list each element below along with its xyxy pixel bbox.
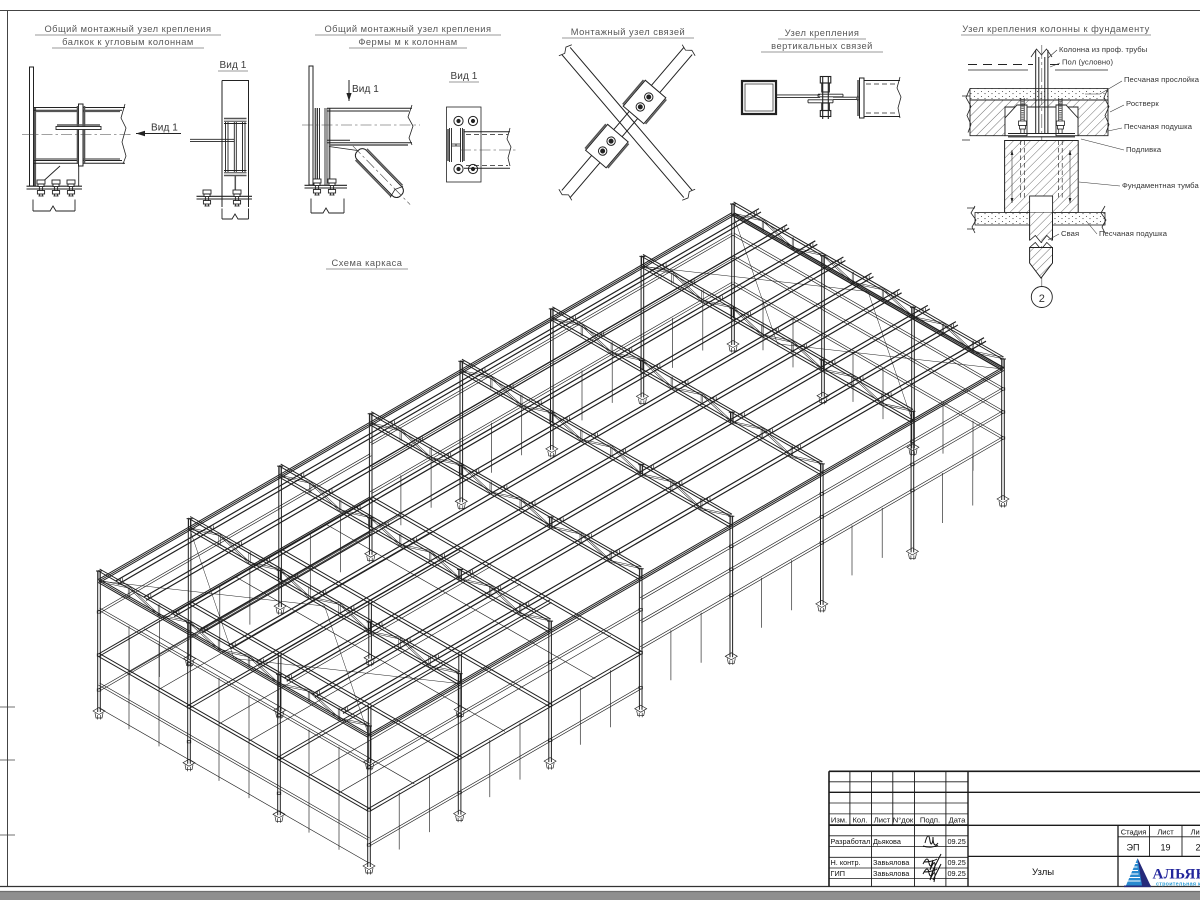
svg-text:Узел крепления колонны к фунда: Узел крепления колонны к фундаменту <box>962 24 1150 34</box>
svg-text:Вид 1: Вид 1 <box>352 84 379 95</box>
svg-text:Лист: Лист <box>874 815 891 824</box>
svg-text:Колонна из проф. трубы: Колонна из проф. трубы <box>1059 45 1147 54</box>
svg-text:Монтажный узел связей: Монтажный узел связей <box>571 27 686 37</box>
svg-text:2: 2 <box>1039 293 1045 305</box>
svg-text:Дьякова: Дьякова <box>873 837 902 846</box>
svg-text:Н. контр.: Н. контр. <box>831 858 861 867</box>
svg-text:ЭП: ЭП <box>1127 843 1140 853</box>
svg-text:Свая: Свая <box>1061 229 1079 238</box>
svg-text:Вид 1: Вид 1 <box>151 123 178 134</box>
svg-text:балкок к угловым колоннам: балкок к угловым колоннам <box>62 37 194 47</box>
svg-text:Фермы м к колоннам: Фермы м к колоннам <box>358 37 457 47</box>
svg-text:Узел крепления: Узел крепления <box>785 28 860 38</box>
svg-text:Общий монтажный узел крепления: Общий монтажный узел крепления <box>44 24 211 34</box>
svg-text:Песчаная подушка: Песчаная подушка <box>1124 122 1193 131</box>
svg-text:Общий монтажный узел крепления: Общий монтажный узел крепления <box>324 24 491 34</box>
svg-text:09.25: 09.25 <box>948 858 966 867</box>
svg-text:Песчаная прослойка: Песчаная прослойка <box>1124 75 1200 84</box>
svg-text:строительная компания: строительная компания <box>1156 882 1200 888</box>
svg-text:N°док: N°док <box>893 815 914 824</box>
svg-text:Вид 1: Вид 1 <box>451 71 478 82</box>
svg-text:Изм.: Изм. <box>831 815 847 824</box>
svg-text:Подливка: Подливка <box>1126 145 1162 154</box>
svg-text:Схема каркаса: Схема каркаса <box>332 258 403 268</box>
svg-text:Песчаная подушка: Песчаная подушка <box>1099 229 1168 238</box>
svg-text:Лист: Лист <box>1157 828 1174 837</box>
svg-text:Завьялова: Завьялова <box>873 858 910 867</box>
svg-text:19: 19 <box>1160 843 1170 853</box>
svg-text:Вид 1: Вид 1 <box>220 60 247 71</box>
svg-text:Пол (условно): Пол (условно) <box>1062 58 1113 67</box>
svg-text:АЛЬЯН: АЛЬЯН <box>1153 867 1200 883</box>
svg-text:Стадия: Стадия <box>1121 828 1147 837</box>
svg-text:09.25: 09.25 <box>948 869 966 878</box>
svg-text:2: 2 <box>1195 843 1200 853</box>
svg-text:Завьялова: Завьялова <box>873 869 910 878</box>
svg-text:Лис: Лис <box>1191 828 1200 837</box>
svg-text:Разработал: Разработал <box>831 837 871 846</box>
svg-text:Фундаментная тумба: Фундаментная тумба <box>1122 181 1199 190</box>
svg-text:Кол.: Кол. <box>852 815 867 824</box>
svg-text:Ростверк: Ростверк <box>1126 99 1159 108</box>
svg-text:Подп.: Подп. <box>920 815 940 824</box>
svg-text:Узлы: Узлы <box>1032 867 1054 878</box>
svg-text:09.25: 09.25 <box>948 837 966 846</box>
svg-text:вертикальных связей: вертикальных связей <box>771 41 873 51</box>
svg-text:Дата: Дата <box>949 815 967 824</box>
svg-text:ГИП: ГИП <box>831 869 845 878</box>
